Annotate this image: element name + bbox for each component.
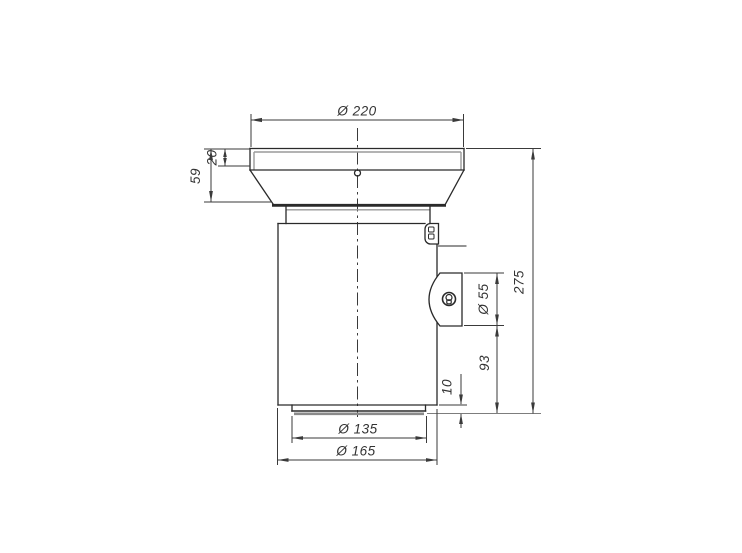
arrowhead-left	[251, 118, 262, 122]
side-outlet	[429, 273, 462, 326]
arrowhead-bottom	[495, 315, 499, 326]
arrowhead-right	[453, 118, 464, 122]
dim-label-funnel-height: 59	[188, 168, 203, 184]
dim-label-top-diameter: Ø 220	[336, 104, 376, 119]
dim-label-lip-diameter: Ø 135	[337, 422, 377, 437]
dim-label-lip-height: 10	[440, 379, 455, 395]
arrowhead-right	[416, 436, 427, 440]
dim-label-body-diameter: Ø 165	[335, 444, 375, 459]
arrowhead-top	[495, 273, 499, 284]
outlet-outline	[429, 273, 462, 326]
arrowhead-top	[223, 149, 227, 157]
cone-left-slope	[250, 170, 273, 204]
dim-lip-diameter: Ø 135	[292, 416, 427, 443]
arrowhead-top	[531, 149, 535, 160]
drawing-canvas: Ø 220 20 59 Ø 55 93	[0, 0, 742, 553]
dim-label-outlet-diameter: Ø 55	[476, 283, 491, 315]
arrowhead-bottom	[495, 403, 499, 414]
arrowhead-bottom	[209, 191, 213, 202]
arrowhead-down	[459, 395, 463, 406]
neck	[286, 207, 430, 224]
dim-outlet-offset: 93	[477, 326, 499, 414]
dim-outlet-diameter: Ø 55	[464, 273, 504, 326]
dim-label-outlet-offset: 93	[477, 355, 492, 371]
arrowhead-bottom	[223, 158, 227, 166]
technical-drawing: Ø 220 20 59 Ø 55 93	[0, 0, 742, 553]
arrowhead-right	[426, 458, 437, 462]
dim-funnel-height: 59	[188, 149, 272, 202]
arrowhead-bottom	[531, 403, 535, 414]
arrowhead-up	[459, 414, 463, 425]
arrowhead-left	[292, 436, 303, 440]
dim-label-overall-height: 275	[512, 270, 527, 295]
bottom-lip	[292, 405, 426, 414]
latch-tab	[425, 224, 466, 247]
cone-right-slope	[446, 170, 465, 204]
arrowhead-top	[495, 326, 499, 337]
dim-lip-height: 10	[439, 374, 467, 428]
arrowhead-left	[278, 458, 289, 462]
